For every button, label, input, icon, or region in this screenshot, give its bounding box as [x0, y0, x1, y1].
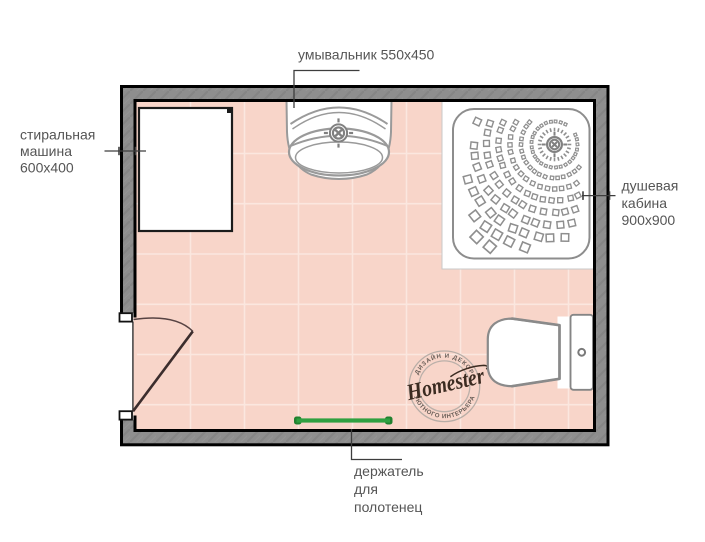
- svg-text:душеваякабина900х900: душеваякабина900х900: [622, 177, 679, 228]
- svg-text:держательдляполотенец: держательдляполотенец: [354, 463, 424, 515]
- svg-text:умывальник 550х450: умывальник 550х450: [298, 47, 435, 63]
- svg-text:стиральнаямашина600х400: стиральнаямашина600х400: [20, 126, 95, 175]
